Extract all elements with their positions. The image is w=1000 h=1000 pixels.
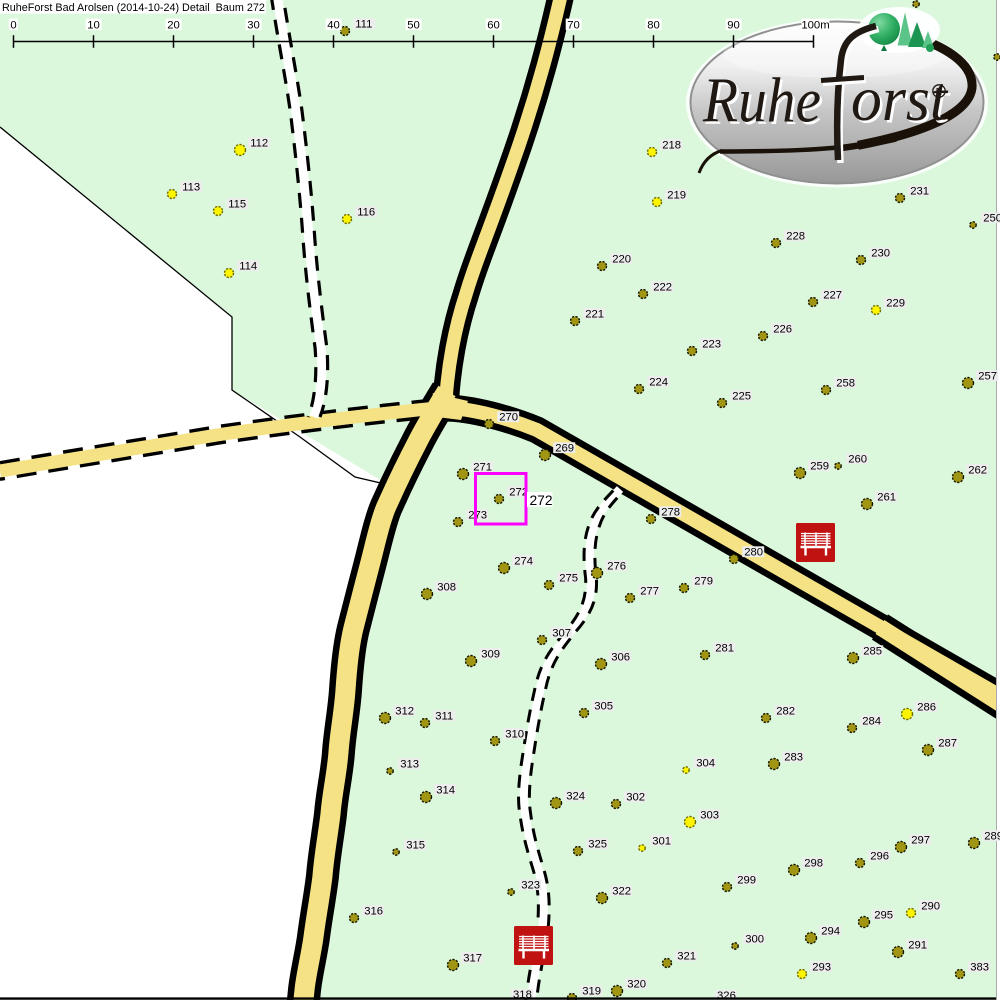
- svg-text:271: 271: [473, 461, 492, 473]
- svg-text:225: 225: [732, 390, 751, 402]
- svg-text:317: 317: [463, 952, 482, 964]
- svg-text:100m: 100m: [801, 20, 829, 32]
- svg-text:306: 306: [611, 651, 630, 663]
- svg-text:231: 231: [910, 185, 929, 197]
- svg-text:111: 111: [355, 18, 372, 30]
- svg-text:Ruhe: Ruhe: [702, 66, 821, 136]
- svg-text:287: 287: [938, 737, 957, 749]
- svg-text:219: 219: [667, 189, 686, 201]
- svg-text:302: 302: [626, 791, 645, 803]
- svg-text:280: 280: [744, 546, 763, 558]
- svg-text:297: 297: [911, 834, 930, 846]
- svg-text:307: 307: [552, 627, 571, 639]
- svg-text:115: 115: [228, 198, 246, 210]
- svg-text:20: 20: [167, 20, 180, 32]
- svg-text:30: 30: [247, 20, 260, 32]
- svg-text:116: 116: [357, 206, 375, 218]
- svg-text:299: 299: [737, 874, 756, 886]
- svg-text:294: 294: [821, 925, 840, 937]
- svg-text:319: 319: [582, 985, 601, 997]
- svg-text:316: 316: [364, 905, 383, 917]
- svg-text:10: 10: [87, 20, 100, 32]
- svg-text:261: 261: [877, 491, 896, 503]
- svg-text:284: 284: [862, 715, 881, 727]
- svg-text:296: 296: [870, 850, 889, 862]
- svg-text:303: 303: [700, 809, 719, 821]
- svg-text:40: 40: [327, 20, 340, 32]
- svg-text:258: 258: [836, 377, 855, 389]
- svg-text:80: 80: [647, 20, 660, 32]
- svg-text:281: 281: [715, 642, 734, 654]
- svg-text:218: 218: [662, 139, 681, 151]
- svg-text:289: 289: [984, 830, 1000, 842]
- svg-text:50: 50: [407, 20, 420, 32]
- svg-text:R: R: [936, 87, 943, 97]
- svg-text:272: 272: [530, 493, 553, 508]
- svg-text:291: 291: [908, 939, 927, 951]
- svg-text:300: 300: [745, 933, 764, 945]
- svg-text:313: 313: [400, 758, 419, 770]
- svg-text:257: 257: [978, 370, 997, 382]
- svg-text:301: 301: [652, 835, 671, 847]
- svg-text:285: 285: [863, 645, 882, 657]
- svg-text:229: 229: [886, 297, 905, 309]
- svg-text:293: 293: [812, 961, 831, 973]
- svg-text:279: 279: [694, 575, 713, 587]
- svg-text:282: 282: [776, 705, 795, 717]
- svg-text:324: 324: [566, 790, 585, 802]
- svg-text:114: 114: [239, 260, 257, 272]
- svg-text:290: 290: [921, 900, 940, 912]
- svg-text:283: 283: [784, 751, 803, 763]
- svg-text:90: 90: [727, 20, 740, 32]
- svg-text:112: 112: [250, 137, 268, 149]
- svg-text:0: 0: [10, 20, 16, 32]
- svg-text:273: 273: [468, 509, 487, 521]
- svg-text:304: 304: [696, 757, 715, 769]
- svg-text:262: 262: [968, 464, 987, 476]
- svg-text:orst: orst: [851, 64, 948, 134]
- svg-text:274: 274: [514, 555, 533, 567]
- svg-text:259: 259: [810, 460, 829, 472]
- svg-text:325: 325: [588, 838, 607, 850]
- svg-text:260: 260: [848, 453, 867, 465]
- svg-text:311: 311: [435, 710, 453, 722]
- svg-text:269: 269: [555, 442, 574, 454]
- svg-text:226: 226: [773, 323, 792, 335]
- svg-text:315: 315: [406, 839, 425, 851]
- svg-text:310: 310: [505, 728, 524, 740]
- svg-text:383: 383: [970, 961, 989, 973]
- svg-text:314: 314: [436, 784, 455, 796]
- svg-text:305: 305: [594, 700, 613, 712]
- svg-text:286: 286: [917, 701, 936, 713]
- svg-text:308: 308: [437, 581, 456, 593]
- svg-text:322: 322: [612, 885, 631, 897]
- svg-text:277: 277: [640, 585, 659, 597]
- svg-text:312: 312: [395, 705, 414, 717]
- svg-text:60: 60: [487, 20, 500, 32]
- svg-text:RuheForst Bad Arolsen (2014-10: RuheForst Bad Arolsen (2014-10-24) Detai…: [2, 2, 265, 14]
- svg-text:295: 295: [874, 909, 893, 921]
- svg-text:275: 275: [559, 572, 578, 584]
- svg-text:276: 276: [607, 560, 626, 572]
- svg-text:309: 309: [481, 648, 500, 660]
- svg-text:321: 321: [677, 950, 696, 962]
- svg-text:70: 70: [567, 20, 580, 32]
- svg-text:113: 113: [182, 181, 200, 193]
- svg-text:250: 250: [983, 212, 1000, 224]
- svg-text:220: 220: [612, 253, 631, 265]
- svg-text:227: 227: [823, 289, 842, 301]
- svg-text:224: 224: [649, 376, 668, 388]
- svg-text:222: 222: [653, 281, 672, 293]
- svg-text:320: 320: [627, 978, 646, 990]
- svg-text:323: 323: [521, 879, 540, 891]
- svg-text:230: 230: [871, 247, 890, 259]
- svg-text:228: 228: [786, 230, 805, 242]
- svg-text:270: 270: [499, 411, 518, 423]
- svg-text:278: 278: [661, 506, 680, 518]
- svg-text:223: 223: [702, 338, 721, 350]
- svg-text:298: 298: [804, 857, 823, 869]
- svg-text:221: 221: [585, 308, 604, 320]
